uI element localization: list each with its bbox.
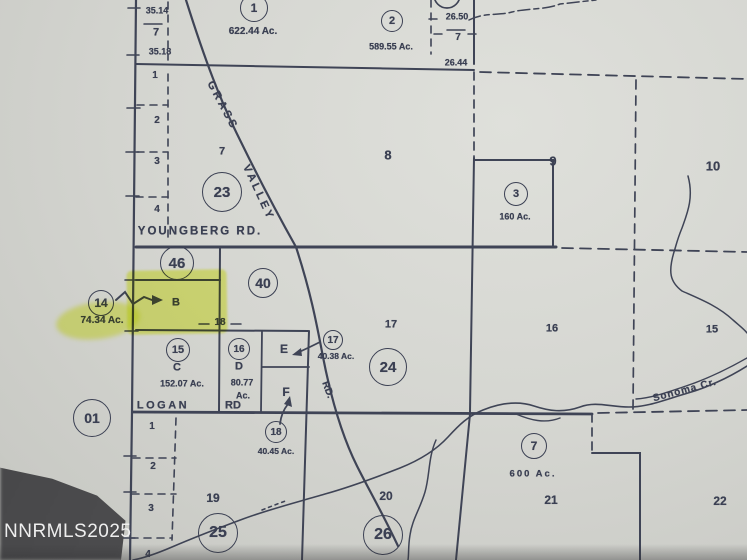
acreage-600: 600 Ac.	[510, 469, 557, 479]
acreage-160: 160 Ac.	[499, 213, 530, 222]
acreage-4045: 40.45 Ac.	[258, 447, 295, 456]
section-15: 15	[706, 325, 718, 336]
circled-id-2: 2	[381, 10, 403, 32]
youngberg-road-dashed	[562, 248, 747, 252]
section-19: 19	[206, 492, 219, 504]
section-8: 8	[384, 149, 391, 162]
parcel-e-arrowhead	[292, 348, 302, 356]
lot-dim-7-right: 7	[455, 33, 461, 43]
top-section-line	[136, 64, 474, 70]
logan-road-dashed	[598, 410, 747, 413]
circled-id-01: 01	[73, 399, 111, 437]
vertical-262	[261, 331, 262, 412]
parcel-b-highlight	[126, 269, 227, 335]
acreage-622: 622.44 Ac.	[229, 27, 278, 37]
top-right-creek-line	[469, 0, 596, 20]
lot-number-3b: 3	[148, 504, 154, 514]
section-22: 22	[713, 495, 726, 507]
vertical-474-bottom	[456, 414, 470, 560]
plat-map-photo: 35.14 7 35.18 26.50 7 26.44 18 1 2 3 4 1…	[0, 0, 747, 560]
lot-dim-2644: 26.44	[445, 59, 468, 68]
circled-id-18: 18	[265, 421, 287, 443]
circled-id-17: 17	[323, 330, 343, 350]
lot-dim-2650: 26.50	[446, 13, 469, 22]
logan-road-label: LOGAN	[137, 401, 189, 412]
photo-bottom-shadow	[0, 544, 747, 560]
vertical-635-dashed	[633, 80, 636, 410]
lot-number-3: 3	[154, 157, 160, 167]
section-20: 20	[379, 490, 392, 502]
section10-creek-line	[671, 176, 747, 333]
section-17: 17	[385, 320, 397, 331]
section-16: 16	[546, 324, 558, 335]
parcel-c-label: C	[173, 363, 181, 374]
lot-number-1b: 1	[149, 422, 155, 432]
lot-number-2: 2	[154, 116, 160, 126]
logan-road-line	[133, 412, 592, 414]
circled-id-24: 24	[369, 348, 407, 386]
section-9: 9	[549, 155, 556, 168]
acreage-4038: 40.38 Ac.	[318, 352, 355, 361]
lot-dim-3518: 35.18	[149, 48, 172, 57]
circled-id-3: 3	[504, 182, 528, 206]
circled-id-40: 40	[248, 268, 278, 298]
circled-id-15: 15	[166, 338, 190, 362]
section-10: 10	[706, 160, 720, 173]
parcel-d-label: D	[235, 362, 243, 373]
lot-dim-3514: 35.14	[146, 7, 169, 16]
top-section-line-dashed	[480, 72, 747, 79]
lot-number-4: 4	[154, 205, 160, 215]
lot-number-2b: 2	[150, 462, 156, 472]
circled-id-16: 16	[228, 338, 250, 360]
section-7: 7	[219, 147, 225, 158]
parcel-e-label: E	[280, 343, 288, 355]
circled-id-7: 7	[521, 433, 547, 459]
parcel-f-label: F	[282, 386, 289, 398]
circled-id-23: 23	[202, 172, 242, 212]
lot-dim-7-top: 7	[153, 28, 159, 39]
vertical-306	[302, 331, 309, 560]
section-21: 21	[544, 494, 557, 506]
acreage-152: 152.07 Ac.	[160, 380, 204, 389]
youngberg-road-label: YOUNGBERG RD.	[138, 226, 262, 238]
map-layer: 35.14 7 35.18 26.50 7 26.44 18 1 2 3 4 1…	[0, 0, 747, 560]
clipped-top-circle	[434, 0, 460, 8]
logan-rd-suffix-label: RD	[225, 401, 241, 412]
mls-watermark: NNRMLS2025	[4, 521, 132, 543]
vertical-474-mid	[470, 158, 474, 412]
acreage-589: 589.55 Ac.	[369, 43, 413, 52]
lot-number-1: 1	[152, 71, 158, 81]
map-linework	[0, 0, 747, 560]
acreage-80: 80.77	[231, 379, 254, 388]
